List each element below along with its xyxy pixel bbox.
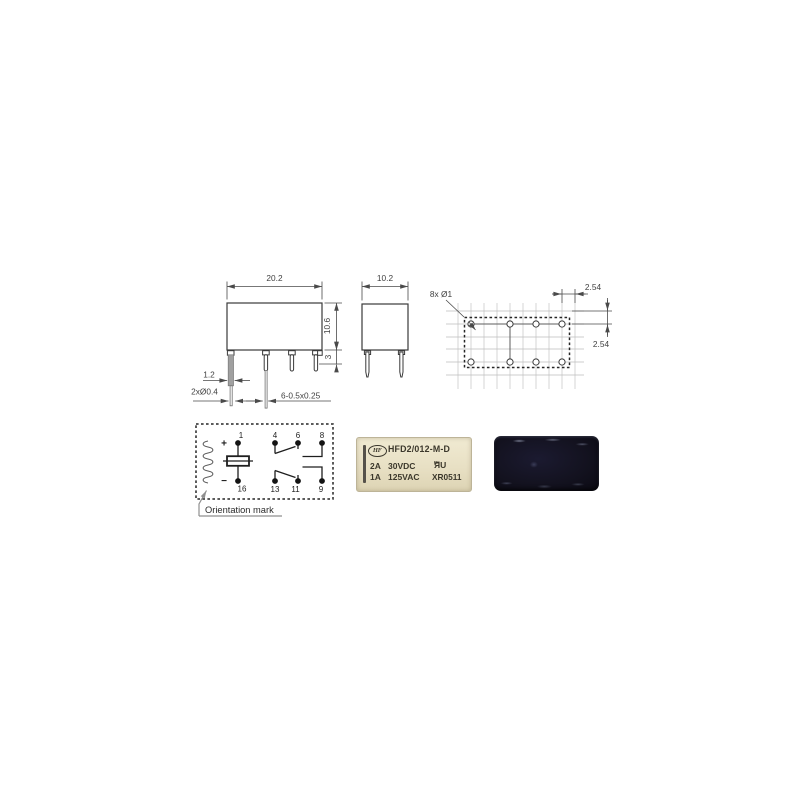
hongfa-logo-text: HF xyxy=(373,447,382,454)
dim-coil-pins: 2xØ0.4 xyxy=(191,387,218,397)
front-view-drawing: 10.2 xyxy=(362,273,408,377)
label-rating2-voltage: 125VAC xyxy=(388,472,420,482)
label-date-code: XR0511 xyxy=(432,472,462,482)
pcb-hole xyxy=(559,359,565,365)
relay-pin xyxy=(366,352,369,377)
pin-dot-16 xyxy=(235,478,241,484)
relay-pin xyxy=(400,352,403,377)
pin-label-16: 16 xyxy=(238,485,247,494)
coil-plus-sign: + xyxy=(221,439,227,450)
contact-pin xyxy=(290,355,293,371)
dim-body-width: 20.2 xyxy=(266,273,283,283)
label-rating1-voltage: 30VDC xyxy=(388,461,415,471)
pin-label-8: 8 xyxy=(320,431,325,440)
pin-dot-13 xyxy=(272,478,278,484)
relay-label-photo: HF HFD2/012-M-D 2A 30VDC 1A 125VAC cЯUus… xyxy=(356,437,472,492)
technical-drawing-canvas: 20.2 10.6 3 1.2 2xØ0.4 6-0.5x0.25 xyxy=(0,0,800,800)
label-orientation-bar xyxy=(363,445,366,483)
pcb-hole xyxy=(533,359,539,365)
label-model-number: HFD2/012-M-D xyxy=(388,444,450,454)
relay-top-photo xyxy=(494,436,599,491)
label-rating1-current: 2A xyxy=(370,461,381,471)
pin-label-4: 4 xyxy=(273,431,278,440)
ul-mark-us: us xyxy=(434,460,440,466)
contact-pin xyxy=(314,355,317,371)
dim-pitch-horizontal: 2.54 xyxy=(585,282,602,292)
coil-pin-round xyxy=(230,386,232,406)
pin-label-13: 13 xyxy=(271,485,280,494)
pin-dot-4 xyxy=(272,440,278,446)
orientation-mark-symbol xyxy=(203,441,213,483)
dim-body-height: 10.6 xyxy=(322,318,332,335)
pcb-layout-drawing: 8x Ø1 2.54 2.54 xyxy=(430,282,612,389)
coil-pin-front xyxy=(228,355,233,386)
hongfa-logo-icon: HF xyxy=(368,445,387,457)
dim-pin-standoff: 3 xyxy=(323,354,333,359)
pcb-hole xyxy=(507,321,513,327)
pin-dot-11 xyxy=(295,478,301,484)
pin-label-11: 11 xyxy=(291,485,300,494)
pin-dot-1 xyxy=(235,440,241,446)
contact-pin xyxy=(264,355,267,371)
pin-label-9: 9 xyxy=(319,485,324,494)
dim-pin-edge: 1.2 xyxy=(203,370,215,380)
pin-label-1: 1 xyxy=(239,431,244,440)
pcb-hole xyxy=(468,359,474,365)
dim-body-depth: 10.2 xyxy=(377,273,394,283)
callout-holes: 8x Ø1 xyxy=(430,289,453,299)
label-rating2-current: 1A xyxy=(370,472,381,482)
pcb-hole xyxy=(533,321,539,327)
contact-pin-long xyxy=(265,371,267,409)
side-view-drawing: 20.2 10.6 3 1.2 2xØ0.4 6-0.5x0.25 xyxy=(191,273,342,408)
page: 20.2 10.6 3 1.2 2xØ0.4 6-0.5x0.25 xyxy=(0,0,800,800)
pin-dot-6 xyxy=(295,440,301,446)
pin-label-6: 6 xyxy=(296,431,301,440)
pcb-hole xyxy=(559,321,565,327)
orientation-mark-label: Orientation mark xyxy=(205,505,274,515)
pcb-hole xyxy=(507,359,513,365)
schematic-drawing: + − 1 16 4 6 8 13 11 9 xyxy=(196,424,333,516)
dim-contact-pins: 6-0.5x0.25 xyxy=(281,391,321,401)
pin-dot-8 xyxy=(319,440,325,446)
pin-dot-9 xyxy=(319,478,325,484)
coil-minus-sign: − xyxy=(221,476,227,487)
dim-pitch-vertical: 2.54 xyxy=(593,339,610,349)
